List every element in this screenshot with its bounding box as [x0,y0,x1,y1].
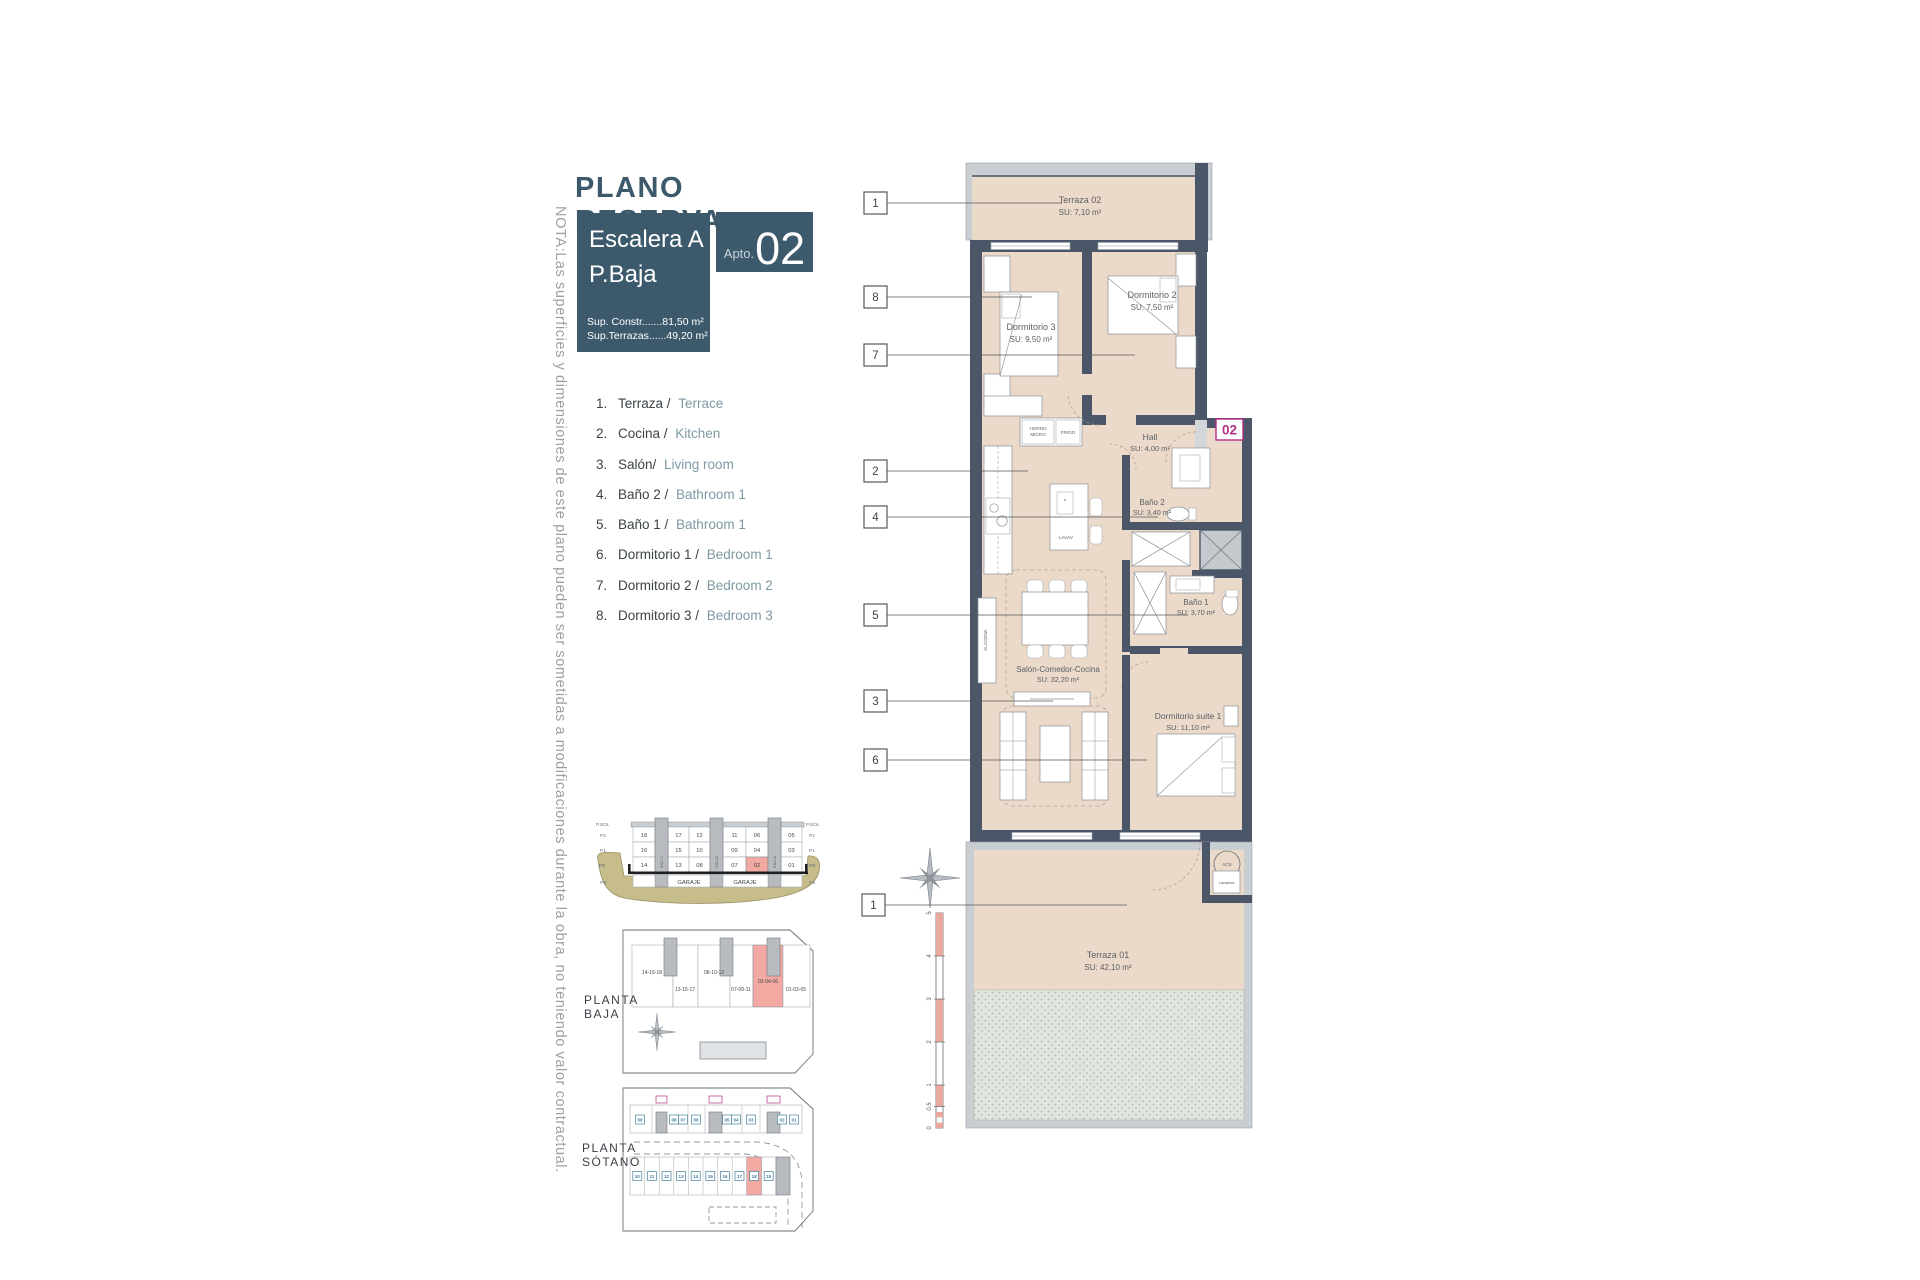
micro-label: MICRO [1030,432,1046,437]
svg-text:11: 11 [731,833,737,839]
planta-baja-keyplan: 14-16-18 13-15-17 08-10-12 07-09-11 02-0… [584,930,813,1073]
pool [700,1042,766,1059]
room-label: Terraza 02 [1059,195,1102,205]
svg-text:P1: P1 [600,848,606,854]
svg-text:ESC-B: ESC-B [715,856,719,868]
svg-text:07: 07 [731,863,737,869]
fridge-label: FRIGO [1061,430,1076,435]
svg-text:10: 10 [635,1174,641,1179]
hob [986,498,1010,534]
svg-text:PLANTA: PLANTA [582,1141,637,1155]
legend-item: 3. Salón/ Living room [596,457,856,487]
svg-text:05: 05 [724,1118,730,1123]
apartment-entrance-badge: 02 [1216,419,1243,440]
room-label: Baño 1 [1183,598,1209,607]
svg-text:16: 16 [722,1174,728,1179]
svg-text:02: 02 [779,1118,785,1123]
svg-text:ESC-A: ESC-A [773,856,777,868]
svg-text:2: 2 [927,1040,933,1044]
svg-text:18: 18 [641,833,647,839]
room-area: SU: 9,50 m² [1010,335,1053,344]
svg-text:12: 12 [664,1174,670,1179]
svg-text:SÓTANO: SÓTANO [582,1154,641,1169]
washer-label: Lavadora [1219,881,1236,885]
terrace-surface-label: Sup.Terrazas......49,20 m² [587,329,710,343]
room-label: Dormitorio 3 [1006,322,1055,332]
svg-text:13-15-17: 13-15-17 [675,987,695,993]
oven-label: HORNO [1029,426,1047,431]
legend-item: 2. Cocina / Kitchen [596,426,856,456]
room-label: Terraza 01 [1087,950,1130,960]
room-area: SU: 32,20 m² [1037,675,1080,684]
svg-text:14-16-18: 14-16-18 [642,970,662,976]
wardrobe [1132,532,1190,566]
svg-text:01: 01 [788,863,794,869]
room-label: Dormitorio 2 [1127,290,1176,300]
svg-text:13: 13 [675,863,681,869]
svg-text:08: 08 [671,1118,677,1123]
room-label: Hall [1143,432,1158,442]
legend-item: 8. Dormitorio 3 / Bedroom 3 [596,608,856,638]
svg-text:3: 3 [872,696,878,708]
badge-number: 02 [1222,423,1237,438]
legend-item: 7. Dormitorio 2 / Bedroom 2 [596,578,856,608]
svg-text:04: 04 [754,848,761,854]
legend-item: 5. Baño 1 / Bathroom 1 [596,517,856,547]
apto-label: Apto. [724,246,754,261]
pantry-label: ALACENA [983,628,988,650]
svg-text:06: 06 [754,833,760,839]
svg-text:03: 03 [748,1118,754,1123]
plano-reserva-sheet: NOTA:Las superficies y dimensiones de es… [0,0,1920,1280]
legend-item: 6. Dormitorio 1 / Bedroom 1 [596,547,856,577]
svg-text:15: 15 [708,1174,714,1179]
svg-text:18: 18 [752,1174,758,1179]
svg-text:08: 08 [696,863,702,869]
floor-label: P.Baja [589,258,710,293]
room-area: SU: 7,10 m² [1059,208,1102,217]
legend-item: 1. Terraza / Terrace [596,396,856,426]
svg-text:P2: P2 [600,833,606,839]
svg-text:0.5: 0.5 [927,1102,933,1111]
svg-text:11: 11 [649,1174,654,1179]
apto-number: 02 [755,230,805,268]
svg-text:5: 5 [872,610,878,622]
svg-text:PB: PB [599,863,605,869]
svg-text:09: 09 [731,848,737,854]
svg-text:03: 03 [788,848,794,854]
svg-text:1: 1 [927,1083,933,1087]
terraza-01: Terraza 01 SU: 42,10 m² ACS Lavadora [966,842,1252,1128]
svg-text:P.SOL: P.SOL [596,822,610,828]
svg-text:GARAJE: GARAJE [677,880,700,886]
svg-text:06: 06 [693,1118,699,1123]
room-area: SU: 3,40 m² [1133,508,1172,517]
svg-text:6: 6 [872,755,878,767]
svg-text:4: 4 [872,512,879,524]
svg-text:09: 09 [637,1118,643,1123]
acs-label: ACS [1222,862,1231,867]
vertical-disclaimer-note: NOTA:Las superficies y dimensiones de es… [546,206,568,1106]
scale-bar: 5 4 3 2 1 0.5 0 [927,911,945,1130]
svg-text:GARAJE: GARAJE [733,880,756,886]
svg-text:2: 2 [872,466,878,478]
room-area: SU: 11,10 m² [1166,723,1210,732]
svg-text:04: 04 [733,1118,739,1123]
room-label: Salón-Comedor-Cocina [1016,665,1100,674]
svg-text:P2: P2 [809,833,815,839]
svg-text:3: 3 [927,997,933,1001]
svg-text:8: 8 [872,292,878,304]
svg-text:16: 16 [641,848,647,854]
svg-text:07: 07 [680,1118,686,1123]
svg-text:PB: PB [809,863,815,869]
room-area: SU: 3,70 m² [1177,608,1216,617]
svg-text:7: 7 [872,350,878,362]
built-surface-label: Sup. Constr.......81,50 m² [587,315,710,329]
svg-text:12: 12 [696,833,702,839]
dishwasher-label: LAVAV [1059,535,1074,540]
svg-text:PS: PS [809,880,815,886]
svg-text:15: 15 [675,848,681,854]
room-area: SU: 42,10 m² [1084,963,1131,972]
svg-text:14: 14 [693,1174,699,1179]
svg-text:07-09-11: 07-09-11 [731,987,751,993]
room-legend: 1. Terraza / Terrace 2. Cocina / Kitchen… [596,396,856,638]
terraza-02: Terraza 02 SU: 7,10 m² [966,163,1212,240]
svg-text:13: 13 [679,1174,685,1179]
room-area: SU: 7,50 m² [1131,303,1174,312]
svg-text:05: 05 [788,833,794,839]
building-section: 18 17 12 11 06 05 16 15 10 09 04 03 14 1… [596,818,820,903]
svg-text:10: 10 [696,848,702,854]
svg-text:02-04-06: 02-04-06 [758,979,778,985]
svg-text:17: 17 [675,833,681,839]
building-key-plans: 18 17 12 11 06 05 16 15 10 09 04 03 14 1… [575,805,920,1245]
legend-item: 4. Baño 2 / Bathroom 1 [596,487,856,517]
stair-floor-info-box: Escalera A P.Baja Sup. Constr.......81,5… [577,213,710,352]
svg-text:P.SOL: P.SOL [806,822,820,828]
apartment-number-box: Apto. 02 [716,212,813,272]
svg-text:BAJA: BAJA [584,1007,620,1021]
svg-text:5: 5 [927,911,933,915]
svg-text:ESC-C: ESC-C [660,856,664,868]
svg-text:14: 14 [641,863,648,869]
svg-text:17: 17 [737,1174,743,1179]
svg-text:08-10-12: 08-10-12 [704,970,724,976]
planta-sotano-keyplan: 09 08 07 06 05 04 03 02 01 [582,1088,813,1231]
svg-text:0: 0 [927,1126,933,1130]
svg-text:01: 01 [791,1118,797,1123]
stair-label: Escalera A [589,223,710,258]
svg-text:PLANTA: PLANTA [584,993,639,1007]
room-area: SU: 4,00 m² [1130,444,1171,453]
svg-text:19: 19 [766,1174,772,1179]
svg-text:02: 02 [754,863,760,869]
room-label: Baño 2 [1139,498,1165,507]
svg-text:1: 1 [872,198,878,210]
svg-text:P1: P1 [809,848,815,854]
svg-text:4: 4 [927,954,933,958]
svg-text:PS: PS [600,880,606,886]
room-label: Dormitorio suite 1 [1155,711,1222,721]
svg-text:01-03-05: 01-03-05 [786,987,806,993]
